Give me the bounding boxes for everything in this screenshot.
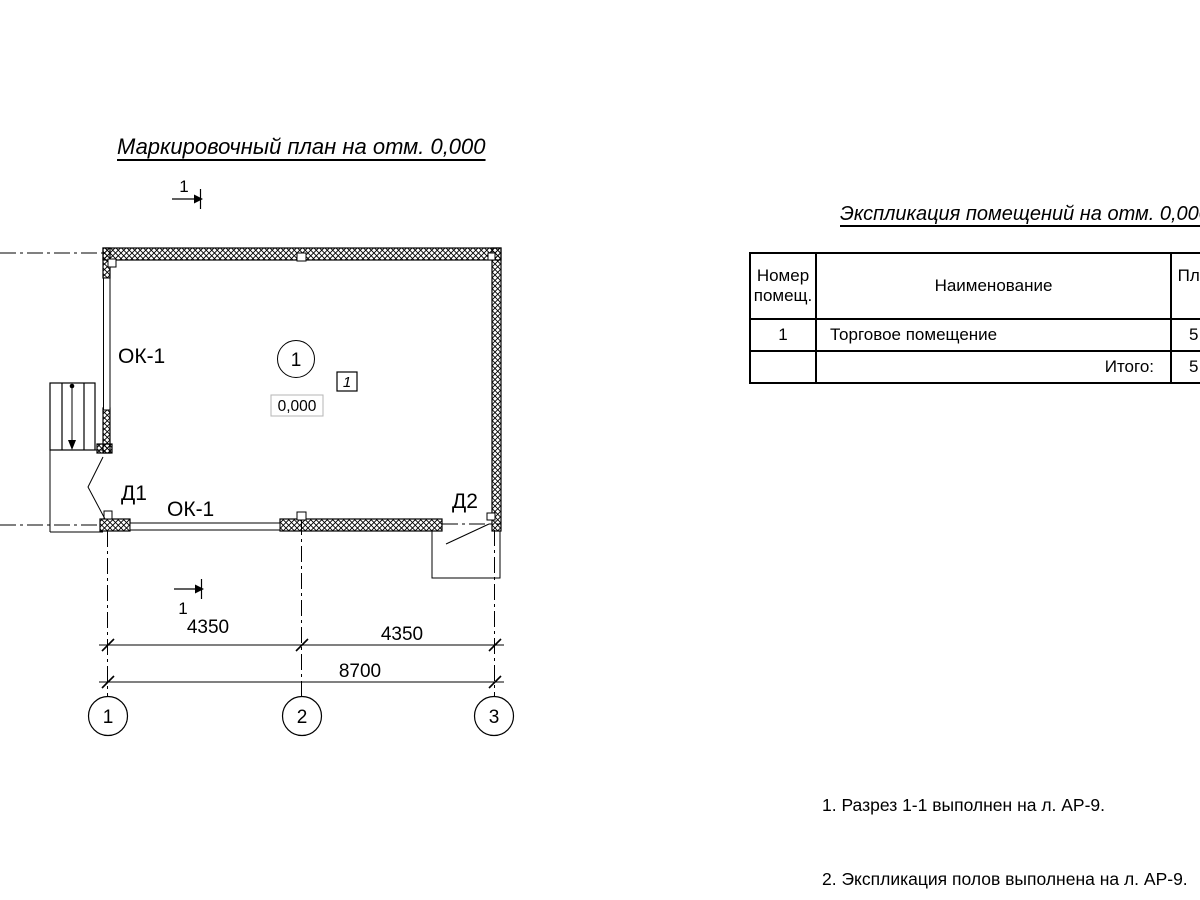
plan-title: Маркировочный план на отм. 0,000 xyxy=(117,134,486,160)
notes: 1. Разрез 1-1 выполнен на л. АР-9. 2. Эк… xyxy=(822,744,1200,900)
room-number-tag: 1 xyxy=(278,341,315,378)
section-mark-bottom: 1 xyxy=(174,579,204,618)
dim-left: 4350 xyxy=(187,617,229,638)
section-mark-top: 1 xyxy=(172,177,203,209)
door-1-leaf xyxy=(88,457,105,519)
grid-axis-2: 2 xyxy=(297,707,308,728)
note-line: 1. Разрез 1-1 выполнен на л. АР-9. xyxy=(822,793,1200,818)
svg-text:1: 1 xyxy=(291,350,302,371)
window-bottom-ok1 xyxy=(130,523,280,530)
elevation-mark: 0,000 xyxy=(271,395,323,416)
walls xyxy=(97,248,501,531)
dimension-texts: 4350 4350 8700 xyxy=(187,617,423,682)
section-arrow-icon xyxy=(195,585,204,594)
table-row-name: Торговое помещение xyxy=(817,320,1172,352)
area-tag: 1 xyxy=(337,372,357,391)
explication-table: Номер помещ. Наименование Площадь, м² 1 … xyxy=(749,252,1200,384)
section-arrow-icon xyxy=(194,195,203,204)
table-header-name: Наименование xyxy=(817,254,1172,320)
door-2-leaf xyxy=(446,524,489,544)
label-door-1: Д1 xyxy=(121,482,147,505)
left-entrance-steps xyxy=(50,383,103,532)
grid-bubbles: 1 2 3 xyxy=(89,697,514,736)
plan-labels: ОК-1 ОК-1 Д1 Д2 xyxy=(118,345,478,521)
grid-axis-3: 3 xyxy=(489,707,500,728)
axis-lines xyxy=(0,253,501,697)
label-window-bottom: ОК-1 xyxy=(167,498,214,521)
table-header-number: Номер помещ. xyxy=(751,254,817,320)
section-number: 1 xyxy=(178,599,187,618)
sheet: 1 1 1 1 0,000 ОК-1 ОК-1 Д1 Д2 xyxy=(0,0,1200,900)
table-total-area: 5 xyxy=(1172,352,1200,382)
right-entrance-porch xyxy=(432,531,500,578)
note-line: 2. Экспликация полов выполнена на л. АР-… xyxy=(822,867,1200,892)
table-header-area: Площадь, м² xyxy=(1172,254,1200,320)
svg-text:1: 1 xyxy=(343,374,351,391)
label-window-left: ОК-1 xyxy=(118,345,165,368)
table-row-area: 5 xyxy=(1172,320,1200,352)
table-row-number: 1 xyxy=(751,320,817,352)
table-total-label: Итого: xyxy=(817,352,1172,382)
dim-right: 4350 xyxy=(381,624,423,645)
section-number: 1 xyxy=(179,177,188,196)
dim-total: 8700 xyxy=(339,661,381,682)
explication-table-title: Экспликация помещений на отм. 0,000 xyxy=(840,203,1200,226)
grid-axis-1: 1 xyxy=(103,707,114,728)
axis-notches xyxy=(104,253,495,520)
table-total-empty xyxy=(751,352,817,382)
svg-text:0,000: 0,000 xyxy=(278,398,317,415)
window-left-ok1 xyxy=(104,278,111,410)
label-door-2: Д2 xyxy=(452,490,478,513)
